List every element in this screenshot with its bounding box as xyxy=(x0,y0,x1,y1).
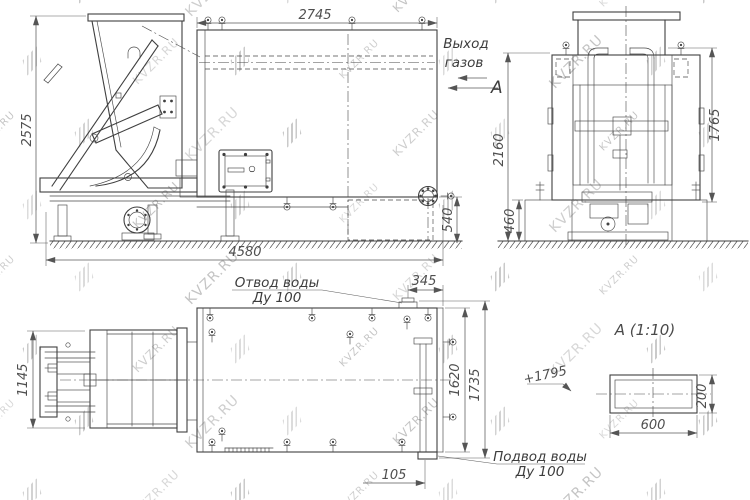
dim-side-foundation: 460 xyxy=(503,209,518,234)
front-dimensions: 2745 2575 4580 540 xyxy=(20,8,462,266)
hopper-handle xyxy=(128,47,140,58)
side-drive-unit xyxy=(536,182,700,240)
view-front: 2745 2575 4580 540 Выход газов А xyxy=(20,8,503,266)
plan-tank xyxy=(60,298,455,459)
detail-a-title: А (1:10) xyxy=(614,321,675,339)
view-plan: 1145 345 1620 1735 105 Отвод воды Д xyxy=(16,274,587,489)
water-inlet-label-2: Ду 100 xyxy=(515,464,565,480)
dim-detail-height: 200 xyxy=(695,384,710,409)
dim-side-left: 2160 xyxy=(492,133,507,166)
dim-front-bottom: 4580 xyxy=(228,245,261,260)
door-handle xyxy=(228,168,244,172)
water-inlet-flange xyxy=(418,452,437,459)
section-letter: А xyxy=(490,78,503,98)
door-latch xyxy=(249,166,255,172)
gas-outlet-label-2: газов xyxy=(445,55,484,71)
side-pipes xyxy=(563,42,684,190)
side-foundation xyxy=(498,200,748,249)
front-bottom-fittings xyxy=(284,187,454,211)
drawing-sheet: KVZR.RUKVZR.RUKVZR.RUKVZR.RUKVZR.RUKVZR.… xyxy=(0,0,750,500)
dim-front-right: 540 xyxy=(441,208,456,233)
technical-drawing: 2745 2575 4580 540 Выход газов А xyxy=(0,0,750,500)
dim-side-right: 1765 xyxy=(708,108,723,141)
view-side: 2160 1765 460 xyxy=(492,6,748,249)
dim-plan-1620: 1620 xyxy=(448,363,463,396)
dim-plan-1735: 1735 xyxy=(468,368,483,401)
dim-front-left: 2575 xyxy=(20,113,35,146)
gas-outlet-note: Выход газов А xyxy=(443,36,502,98)
front-boiler-body xyxy=(197,30,437,240)
front-fuel-hopper xyxy=(44,14,200,190)
dim-plan-345: 345 xyxy=(412,274,437,289)
dim-front-top: 2745 xyxy=(298,8,331,23)
front-furnace-door xyxy=(219,150,272,192)
dim-plan-left: 1145 xyxy=(16,363,31,396)
view-detail-a: А (1:10) 600 200 +1795 xyxy=(522,321,717,438)
dim-plan-105: 105 xyxy=(382,468,407,483)
water-outlet-label-1: Отвод воды xyxy=(235,275,320,291)
side-dimensions: 2160 1765 460 xyxy=(492,48,723,241)
water-outlet-label-2: Ду 100 xyxy=(252,290,302,306)
gas-outlet-label-1: Выход xyxy=(443,36,489,52)
dim-detail-width: 600 xyxy=(641,418,666,433)
water-inlet-label-1: Подвод воды xyxy=(493,449,587,465)
plan-dimensions: 1145 345 1620 1735 105 xyxy=(16,274,490,489)
